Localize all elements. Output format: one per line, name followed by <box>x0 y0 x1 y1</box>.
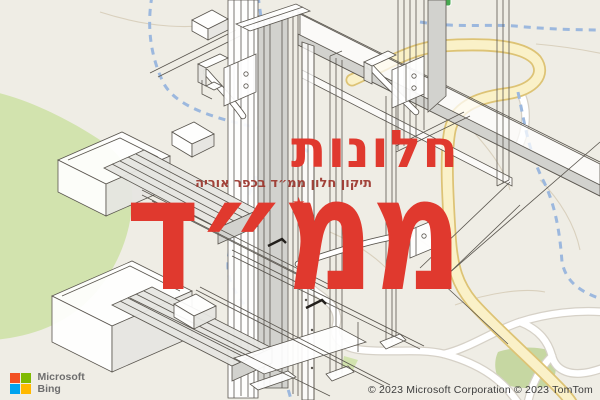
microsoft-logo-icon <box>10 373 31 394</box>
bing-map-image: חלונות ממ״ד תיקון חלון ממ״ד בכפר אוריה ★… <box>0 0 600 400</box>
ms-square-blue <box>10 384 20 394</box>
overlay-subheading: תיקון חלון ממ״ד בכפר אוריה <box>212 177 372 190</box>
ms-square-red <box>10 373 20 383</box>
star-icon: ★ <box>292 194 305 212</box>
ms-square-green <box>21 373 31 383</box>
brand-name-microsoft: Microsoft <box>38 372 85 384</box>
map-attribution: © 2023 Microsoft Corporation © 2023 TomT… <box>368 384 593 396</box>
brand-name-bing: Bing <box>38 384 85 396</box>
bing-logo[interactable]: Microsoft Bing <box>10 372 85 395</box>
ms-square-yellow <box>21 384 31 394</box>
